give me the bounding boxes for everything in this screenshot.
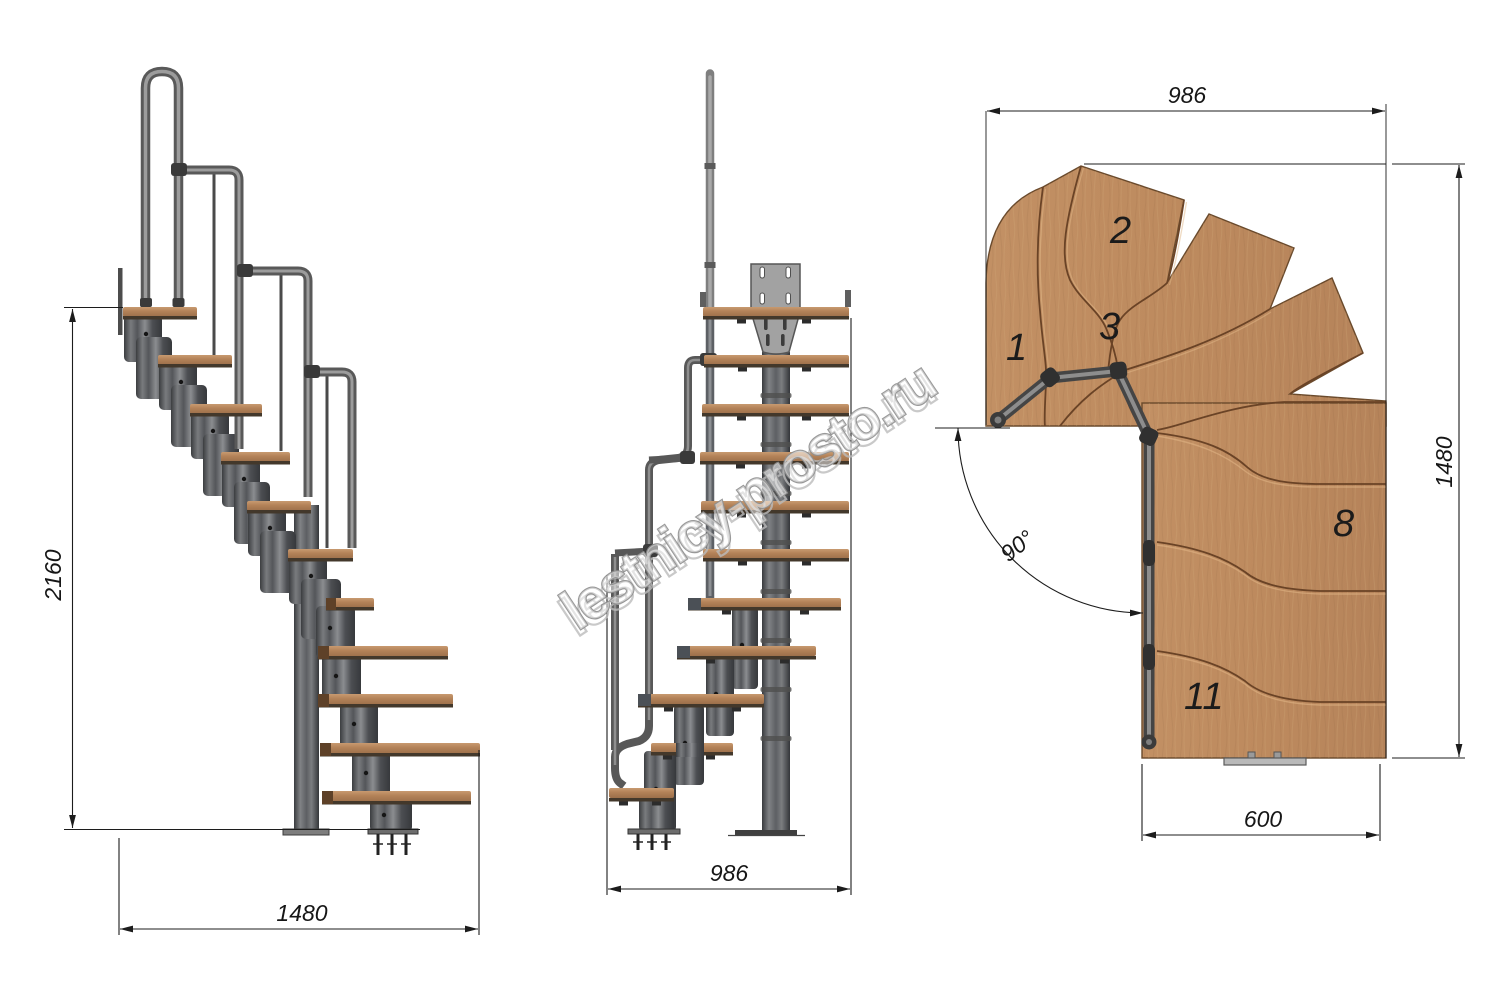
svg-text:2160: 2160 bbox=[40, 549, 66, 601]
svg-text:1: 1 bbox=[1006, 327, 1027, 369]
svg-text:986: 986 bbox=[1168, 82, 1207, 108]
svg-text:2: 2 bbox=[1109, 210, 1131, 252]
svg-text:986: 986 bbox=[710, 860, 749, 886]
svg-text:600: 600 bbox=[1244, 806, 1283, 832]
svg-text:8: 8 bbox=[1333, 503, 1354, 545]
svg-text:3: 3 bbox=[1099, 306, 1120, 348]
svg-text:1480: 1480 bbox=[276, 900, 327, 926]
svg-text:1480: 1480 bbox=[1431, 436, 1457, 487]
svg-text:11: 11 bbox=[1184, 676, 1223, 718]
